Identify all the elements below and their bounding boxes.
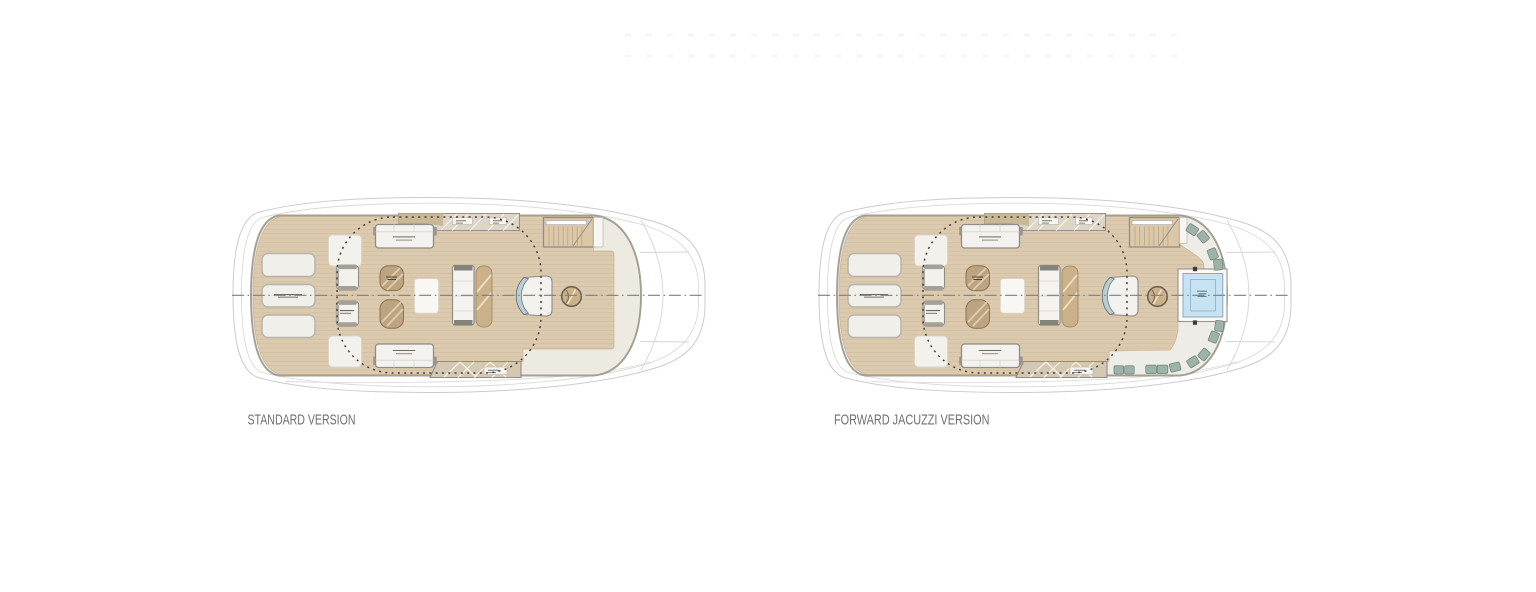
svg-text:STANDARD VERSION: STANDARD VERSION <box>248 412 356 429</box>
svg-text:FORWARD JACUZZI VERSION: FORWARD JACUZZI VERSION <box>834 412 990 429</box>
